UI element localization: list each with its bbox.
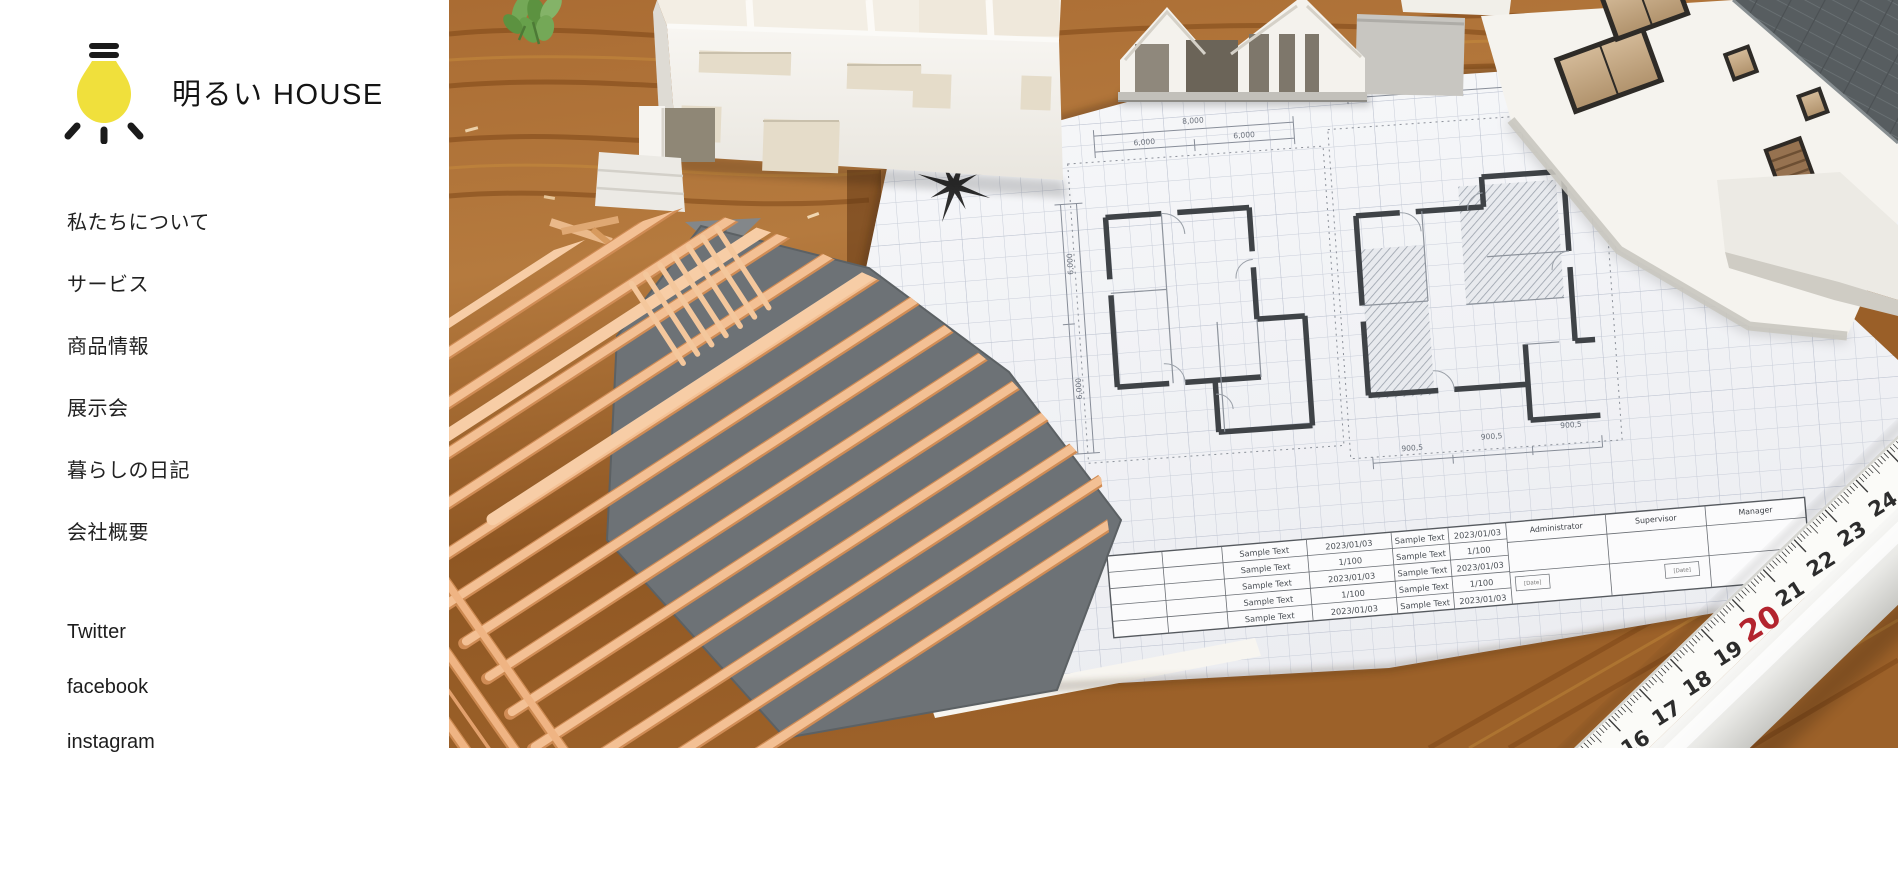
nav-link[interactable]: サービス <box>67 268 149 297</box>
social-link[interactable]: facebook <box>67 676 148 699</box>
svg-text:900,5: 900,5 <box>1401 443 1423 453</box>
social-nav: Twitterfacebookinstagram <box>67 621 155 786</box>
lightbulb-icon <box>62 40 146 144</box>
svg-text:900,5: 900,5 <box>1560 420 1582 430</box>
nav-link[interactable]: 会社概要 <box>67 516 149 545</box>
social-link[interactable]: instagram <box>67 731 155 754</box>
main-nav: 私たちについてサービス商品情報展示会暮らしの日記会社概要 <box>67 206 210 578</box>
social-link[interactable]: Twitter <box>67 621 126 644</box>
nav-link[interactable]: 私たちについて <box>67 206 210 235</box>
svg-text:6,000: 6,000 <box>1233 130 1255 140</box>
hero-image: 8,0006,0006,000 6,0006,000 <box>449 0 1898 748</box>
hero: 8,0006,0006,000 6,0006,000 <box>449 0 1898 748</box>
svg-text:6,000: 6,000 <box>1133 137 1155 147</box>
brand-logo[interactable]: 明るい HOUSE <box>62 40 384 144</box>
svg-text:1/100: 1/100 <box>1469 577 1493 589</box>
svg-text:6,000: 6,000 <box>1065 253 1075 275</box>
nav-link[interactable]: 暮らしの日記 <box>67 454 190 483</box>
nav-link[interactable]: 展示会 <box>67 392 129 421</box>
page: 明るい HOUSE 私たちについてサービス商品情報展示会暮らしの日記会社概要 T… <box>0 0 1898 877</box>
brand-name: 明るい HOUSE <box>172 71 384 113</box>
svg-text:1/100: 1/100 <box>1341 588 1365 600</box>
svg-text:900,5: 900,5 <box>1481 431 1503 441</box>
nav-link[interactable]: 商品情報 <box>67 330 149 359</box>
svg-text:1/100: 1/100 <box>1467 544 1491 556</box>
svg-text:8,000: 8,000 <box>1182 115 1204 125</box>
svg-text:1/100: 1/100 <box>1338 555 1362 567</box>
sidebar: 明るい HOUSE 私たちについてサービス商品情報展示会暮らしの日記会社概要 T… <box>0 0 449 877</box>
house-model-white <box>595 0 1067 212</box>
svg-text:6,000: 6,000 <box>1074 378 1084 400</box>
